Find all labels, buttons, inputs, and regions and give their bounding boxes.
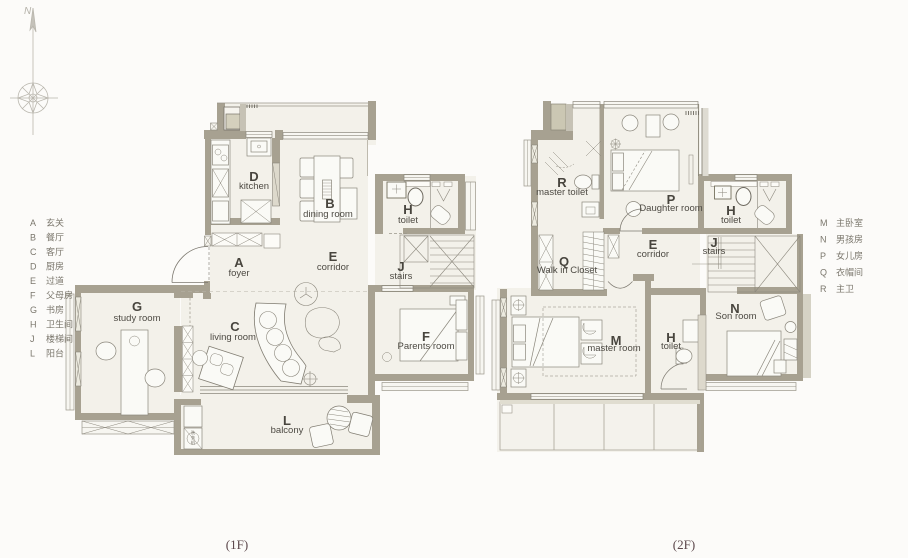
- svg-text:toilet: toilet: [721, 215, 741, 226]
- svg-text:study room: study room: [114, 313, 161, 324]
- svg-text:balcony: balcony: [271, 425, 304, 436]
- svg-text:G: G: [132, 299, 142, 314]
- svg-text:B: B: [30, 233, 36, 243]
- svg-text:Parents room: Parents room: [397, 341, 454, 352]
- svg-text:dining room: dining room: [303, 209, 353, 220]
- svg-text:R: R: [820, 284, 827, 294]
- svg-text:男孩房: 男孩房: [836, 234, 863, 245]
- svg-text:A: A: [30, 218, 36, 228]
- svg-text:(2F): (2F): [673, 537, 695, 552]
- svg-text:主卧室: 主卧室: [836, 217, 863, 228]
- svg-text:阳台: 阳台: [46, 348, 64, 359]
- svg-text:H: H: [30, 320, 37, 330]
- svg-text:Son room: Son room: [715, 311, 756, 322]
- svg-text:父母房: 父母房: [46, 290, 73, 301]
- svg-text:living room: living room: [210, 332, 256, 343]
- svg-text:corridor: corridor: [637, 249, 669, 260]
- svg-text:G: G: [30, 305, 37, 315]
- svg-text:stairs: stairs: [703, 246, 726, 257]
- svg-text:N: N: [24, 6, 32, 17]
- svg-text:E: E: [30, 276, 36, 286]
- svg-text:主卫: 主卫: [836, 283, 854, 294]
- svg-text:Walk in Closet: Walk in Closet: [537, 265, 598, 276]
- svg-text:toilet: toilet: [661, 341, 681, 352]
- svg-text:foyer: foyer: [228, 268, 249, 279]
- svg-text:厨房: 厨房: [46, 261, 64, 272]
- svg-text:书房: 书房: [46, 304, 64, 315]
- svg-text:C: C: [30, 247, 37, 257]
- svg-text:女儿房: 女儿房: [836, 250, 863, 261]
- svg-text:过道: 过道: [46, 275, 64, 286]
- svg-text:餐厅: 餐厅: [46, 232, 64, 243]
- svg-text:衣帽间: 衣帽间: [836, 267, 863, 278]
- svg-text:Q: Q: [820, 268, 827, 278]
- svg-text:P: P: [820, 251, 826, 261]
- svg-text:N: N: [820, 235, 827, 245]
- svg-text:stairs: stairs: [390, 271, 413, 282]
- svg-text:客厅: 客厅: [46, 246, 64, 257]
- svg-text:D: D: [30, 262, 37, 272]
- svg-text:(1F): (1F): [226, 537, 248, 552]
- svg-text:楼梯间: 楼梯间: [46, 333, 73, 344]
- svg-text:Daughter room: Daughter room: [639, 203, 702, 214]
- svg-text:L: L: [30, 349, 35, 359]
- svg-text:M: M: [820, 218, 828, 228]
- svg-text:玄关: 玄关: [46, 217, 64, 228]
- svg-text:master room: master room: [587, 343, 640, 354]
- svg-text:卫生间: 卫生间: [46, 319, 73, 330]
- svg-text:J: J: [30, 334, 35, 344]
- svg-text:corridor: corridor: [317, 262, 349, 273]
- svg-text:kitchen: kitchen: [239, 181, 269, 192]
- svg-text:F: F: [30, 291, 36, 301]
- svg-text:toilet: toilet: [398, 215, 418, 226]
- svg-text:master toilet: master toilet: [536, 187, 588, 198]
